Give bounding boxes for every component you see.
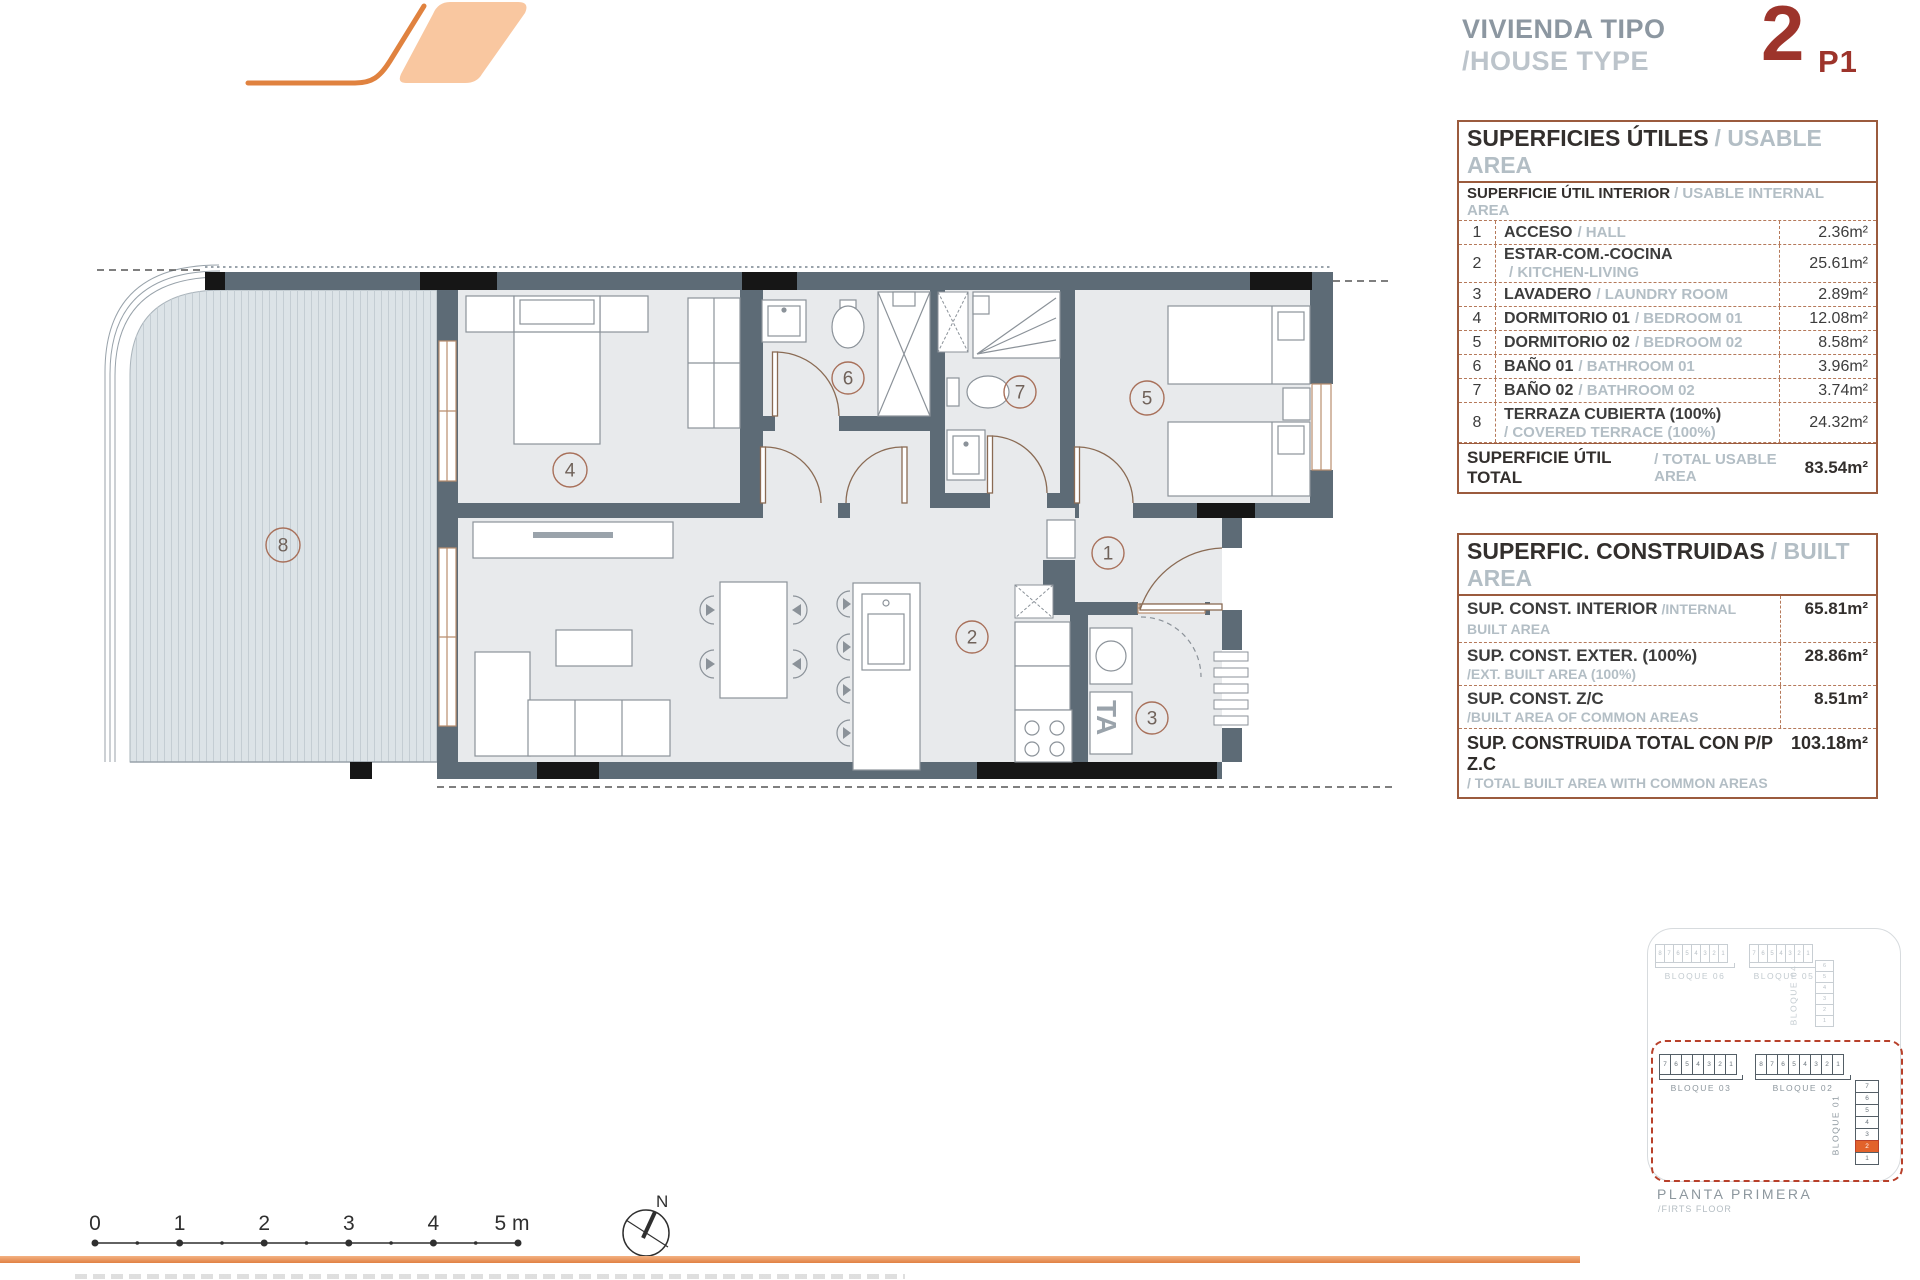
row-value: 8.51m² bbox=[1780, 686, 1876, 728]
row-number: 7 bbox=[1459, 379, 1496, 402]
bloque-06-label: BLOQUE 06 bbox=[1655, 971, 1735, 981]
svg-text:4: 4 bbox=[428, 1212, 440, 1235]
unit-cell: 1 bbox=[1718, 944, 1728, 963]
table-row: 5 DORMITORIO 02/ BEDROOM 02 8.58m² bbox=[1459, 331, 1876, 355]
row-name-en: / BEDROOM 02 bbox=[1635, 334, 1743, 351]
row-name: BAÑO 01/ BATHROOM 01 bbox=[1496, 355, 1779, 378]
bloque-06-units: 87654321 bbox=[1655, 944, 1735, 963]
terrace-8 bbox=[105, 265, 437, 762]
row-name: SUP. CONST. INTERIOR/INTERNAL BUILT AREA bbox=[1459, 596, 1780, 642]
row-value: 25.61m² bbox=[1779, 245, 1876, 282]
svg-text:8: 8 bbox=[278, 536, 289, 557]
built-area-table: SUPERFIC. CONSTRUIDAS/ BUILT AREA SUP. C… bbox=[1457, 533, 1878, 799]
row-name-en: / KITCHEN-LIVING bbox=[1509, 264, 1639, 281]
row-name-en: / COVERED TERRACE (100%) bbox=[1504, 424, 1771, 441]
floor-name-es: PLANTA PRIMERA bbox=[1657, 1186, 1812, 1202]
built-table-rows: SUP. CONST. INTERIOR/INTERNAL BUILT AREA… bbox=[1459, 596, 1876, 729]
row-name: ACCESO/ HALL bbox=[1496, 221, 1779, 244]
row-name-en: / BEDROOM 01 bbox=[1635, 310, 1743, 327]
svg-text:1: 1 bbox=[174, 1212, 186, 1235]
row-value: 3.96m² bbox=[1779, 355, 1876, 378]
bloque-02: 87654321 BLOQUE 02 bbox=[1755, 1054, 1851, 1093]
ta-label: TA bbox=[1091, 700, 1122, 735]
row-value: 28.86m² bbox=[1780, 643, 1876, 685]
bloque-01-units: 7654321 bbox=[1855, 1080, 1879, 1165]
usable-table-header: SUPERFICIES ÚTILES/ USABLE AREA bbox=[1459, 122, 1876, 183]
svg-text:N: N bbox=[656, 1195, 668, 1211]
table-row: 1 ACCESO/ HALL 2.36m² bbox=[1459, 221, 1876, 245]
row-number: 4 bbox=[1459, 307, 1496, 330]
row-value: 3.74m² bbox=[1779, 379, 1876, 402]
total-value: 103.18m² bbox=[1791, 733, 1868, 754]
row-name-es: BAÑO 02 bbox=[1504, 382, 1573, 400]
north-compass-icon: N bbox=[623, 1195, 669, 1256]
row-value: 65.81m² bbox=[1780, 596, 1876, 642]
unit-cell: 1 bbox=[1832, 1054, 1844, 1075]
bloque-03: 7654321 BLOQUE 03 bbox=[1659, 1054, 1743, 1093]
row-value: 2.36m² bbox=[1779, 221, 1876, 244]
row-name-en: / LAUNDRY ROOM bbox=[1596, 286, 1728, 303]
svg-text:0: 0 bbox=[89, 1212, 101, 1235]
svg-text:3: 3 bbox=[1147, 709, 1158, 730]
scale-labels: 0 1 2 3 4 5 m bbox=[89, 1212, 529, 1235]
row-number: 8 bbox=[1459, 403, 1496, 442]
svg-text:2: 2 bbox=[258, 1212, 270, 1235]
row-name-es: ACCESO bbox=[1504, 224, 1572, 242]
bloque-04: 654321 bbox=[1815, 960, 1834, 1027]
row-name: SUP. CONST. Z/C/BUILT AREA OF COMMON ARE… bbox=[1459, 686, 1780, 728]
row-number: 3 bbox=[1459, 283, 1496, 306]
svg-text:4: 4 bbox=[565, 461, 576, 482]
row-name-en: /BUILT AREA OF COMMON AREAS bbox=[1467, 709, 1772, 725]
bloque-05-units: 7654321 bbox=[1749, 944, 1819, 963]
svg-text:7: 7 bbox=[1015, 383, 1026, 404]
usable-table-rows: 1 ACCESO/ HALL 2.36m² 2 ESTAR-COM.-COCIN… bbox=[1459, 221, 1876, 443]
row-name-en: / BATHROOM 01 bbox=[1578, 358, 1694, 375]
house-type-number: 2 bbox=[1761, 0, 1804, 72]
row-name-es: BAÑO 01 bbox=[1504, 358, 1573, 376]
svg-text:3: 3 bbox=[343, 1212, 355, 1235]
floor-name-en: /FIRTS FLOOR bbox=[1658, 1204, 1732, 1214]
row-name-es: SUP. CONST. EXTER. (100%) bbox=[1467, 646, 1697, 665]
table-row: SUP. CONST. Z/C/BUILT AREA OF COMMON ARE… bbox=[1459, 686, 1876, 729]
row-name-en: /EXT. BUILT AREA (100%) bbox=[1467, 666, 1772, 682]
brand-logo-icon bbox=[190, 0, 540, 95]
bloque-02-label: BLOQUE 02 bbox=[1755, 1083, 1851, 1093]
svg-text:2: 2 bbox=[967, 628, 978, 649]
bloque-strip bbox=[1659, 1075, 1743, 1080]
table-row: SUP. CONST. INTERIOR/INTERNAL BUILT AREA… bbox=[1459, 596, 1876, 643]
bloque-03-label: BLOQUE 03 bbox=[1659, 1083, 1743, 1093]
row-name: LAVADERO/ LAUNDRY ROOM bbox=[1496, 283, 1779, 306]
bloque-strip bbox=[1749, 963, 1819, 968]
row-name-es: LAVADERO bbox=[1504, 286, 1591, 304]
table-row: 4 DORMITORIO 01/ BEDROOM 01 12.08m² bbox=[1459, 307, 1876, 331]
row-number: 1 bbox=[1459, 221, 1496, 244]
bloque-01: 7654321 bbox=[1855, 1080, 1879, 1165]
row-name-es: TERRAZA CUBIERTA (100%) bbox=[1504, 406, 1721, 423]
row-name: DORMITORIO 01/ BEDROOM 01 bbox=[1496, 307, 1779, 330]
row-value: 8.58m² bbox=[1779, 331, 1876, 354]
unit-cell: 1 bbox=[1815, 1015, 1834, 1027]
row-name: DORMITORIO 02/ BEDROOM 02 bbox=[1496, 331, 1779, 354]
built-total-row: SUP. CONSTRUIDA TOTAL CON P/P Z.C / TOTA… bbox=[1459, 729, 1876, 797]
table-row: 6 BAÑO 01/ BATHROOM 01 3.96m² bbox=[1459, 355, 1876, 379]
built-title-es: SUPERFIC. CONSTRUIDAS bbox=[1467, 538, 1765, 564]
row-name-es: ESTAR-COM.-COCINA bbox=[1504, 246, 1673, 264]
table-row: 3 LAVADERO/ LAUNDRY ROOM 2.89m² bbox=[1459, 283, 1876, 307]
bloque-04-label: BLOQUE 04 bbox=[1788, 965, 1798, 1026]
usable-sub-es: SUPERFICIE ÚTIL INTERIOR bbox=[1467, 185, 1670, 202]
footer-accent-bar bbox=[0, 1256, 1580, 1263]
svg-text:6: 6 bbox=[843, 369, 854, 390]
usable-area-table: SUPERFICIES ÚTILES/ USABLE AREA SUPERFIC… bbox=[1457, 120, 1878, 494]
plan-sheet: VIVIENDA TIPO /HOUSE TYPE 2 P1 SUPERFICI… bbox=[0, 0, 1920, 1280]
unit-cell: 1 bbox=[1803, 944, 1813, 963]
table-row: SUP. CONST. EXTER. (100%)/EXT. BUILT ARE… bbox=[1459, 643, 1876, 686]
row-name-en: / HALL bbox=[1577, 224, 1625, 241]
row-name-es: DORMITORIO 02 bbox=[1504, 334, 1630, 352]
bloque-04-units: 654321 bbox=[1815, 960, 1834, 1027]
site-key-plan: 87654321 BLOQUE 06 7654321 BLOQUE 05 654… bbox=[1645, 928, 1913, 1218]
total-value: 83.54m² bbox=[1805, 458, 1868, 478]
row-number: 2 bbox=[1459, 245, 1496, 282]
row-value: 12.08m² bbox=[1779, 307, 1876, 330]
bloque-strip bbox=[1655, 963, 1735, 968]
row-value: 2.89m² bbox=[1779, 283, 1876, 306]
svg-text:1: 1 bbox=[1103, 544, 1114, 565]
table-row: 7 BAÑO 02/ BATHROOM 02 3.74m² bbox=[1459, 379, 1876, 403]
row-name: BAÑO 02/ BATHROOM 02 bbox=[1496, 379, 1779, 402]
bloque-03-units: 7654321 bbox=[1659, 1054, 1743, 1075]
usable-total-row: SUPERFICIE ÚTIL TOTAL / TOTAL USABLE ARE… bbox=[1459, 443, 1876, 492]
cutoff-footnote-strip bbox=[75, 1274, 905, 1279]
row-number: 5 bbox=[1459, 331, 1496, 354]
bloque-02-units: 87654321 bbox=[1755, 1054, 1851, 1075]
bloque-01-label: BLOQUE 01 bbox=[1830, 1095, 1840, 1156]
unit-cell: 1 bbox=[1855, 1152, 1879, 1165]
scale-bar: 0 1 2 3 4 5 m N bbox=[60, 1195, 700, 1280]
usable-title-es: SUPERFICIES ÚTILES bbox=[1467, 125, 1709, 151]
row-name: ESTAR-COM.-COCINA/ KITCHEN-LIVING bbox=[1496, 245, 1779, 282]
bloque-06: 87654321 BLOQUE 06 bbox=[1655, 944, 1735, 981]
unit-cell: 1 bbox=[1725, 1054, 1737, 1075]
total-labels: SUP. CONSTRUIDA TOTAL CON P/P Z.C / TOTA… bbox=[1467, 733, 1791, 791]
total-label-es: SUP. CONSTRUIDA TOTAL CON P/P Z.C bbox=[1467, 733, 1791, 775]
row-name-en: / BATHROOM 02 bbox=[1578, 382, 1694, 399]
total-label-en: / TOTAL BUILT AREA WITH COMMON AREAS bbox=[1467, 775, 1791, 791]
row-name: SUP. CONST. EXTER. (100%)/EXT. BUILT ARE… bbox=[1459, 643, 1780, 685]
total-label-es: SUPERFICIE ÚTIL TOTAL bbox=[1467, 448, 1649, 488]
house-type-title-en: /HOUSE TYPE bbox=[1462, 46, 1649, 77]
row-value: 24.32m² bbox=[1779, 403, 1876, 442]
built-table-header: SUPERFIC. CONSTRUIDAS/ BUILT AREA bbox=[1459, 535, 1876, 596]
row-name-es: DORMITORIO 01 bbox=[1504, 310, 1630, 328]
usable-table-subheader: SUPERFICIE ÚTIL INTERIOR/ USABLE INTERNA… bbox=[1459, 183, 1876, 221]
table-row: 8 TERRAZA CUBIERTA (100%)/ COVERED TERRA… bbox=[1459, 403, 1876, 443]
row-name-es: SUP. CONST. INTERIOR bbox=[1467, 599, 1658, 618]
row-name: TERRAZA CUBIERTA (100%)/ COVERED TERRACE… bbox=[1496, 403, 1779, 442]
svg-text:5 m: 5 m bbox=[494, 1212, 529, 1235]
svg-text:5: 5 bbox=[1142, 389, 1153, 410]
total-label-en: / TOTAL USABLE AREA bbox=[1654, 451, 1805, 485]
house-type-title-es: VIVIENDA TIPO bbox=[1462, 14, 1666, 45]
row-number: 6 bbox=[1459, 355, 1496, 378]
table-row: 2 ESTAR-COM.-COCINA/ KITCHEN-LIVING 25.6… bbox=[1459, 245, 1876, 283]
bloque-strip bbox=[1755, 1075, 1851, 1080]
bloque-05-label: BLOQUE 05 bbox=[1749, 971, 1819, 981]
row-name-es: SUP. CONST. Z/C bbox=[1467, 689, 1604, 708]
floor-code: P1 bbox=[1818, 44, 1858, 80]
bloque-05: 7654321 BLOQUE 05 bbox=[1749, 944, 1819, 981]
floor-plan: TA bbox=[95, 258, 1395, 803]
